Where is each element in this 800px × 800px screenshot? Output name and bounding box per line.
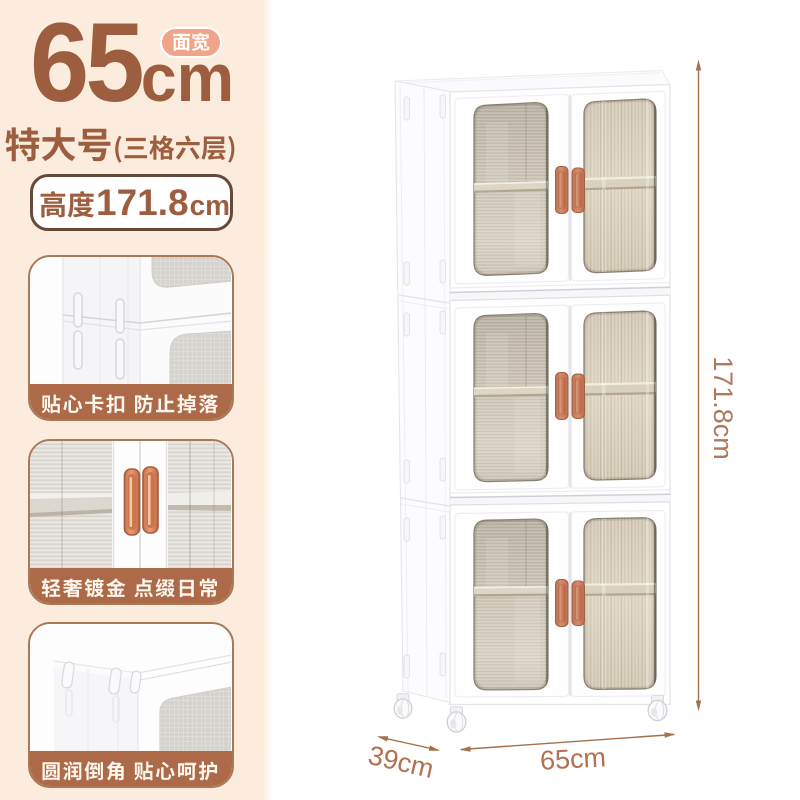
svg-text:39cm: 39cm xyxy=(365,740,436,784)
svg-text:171.8cm: 171.8cm xyxy=(708,356,738,460)
svg-text:65cm: 65cm xyxy=(539,742,607,775)
